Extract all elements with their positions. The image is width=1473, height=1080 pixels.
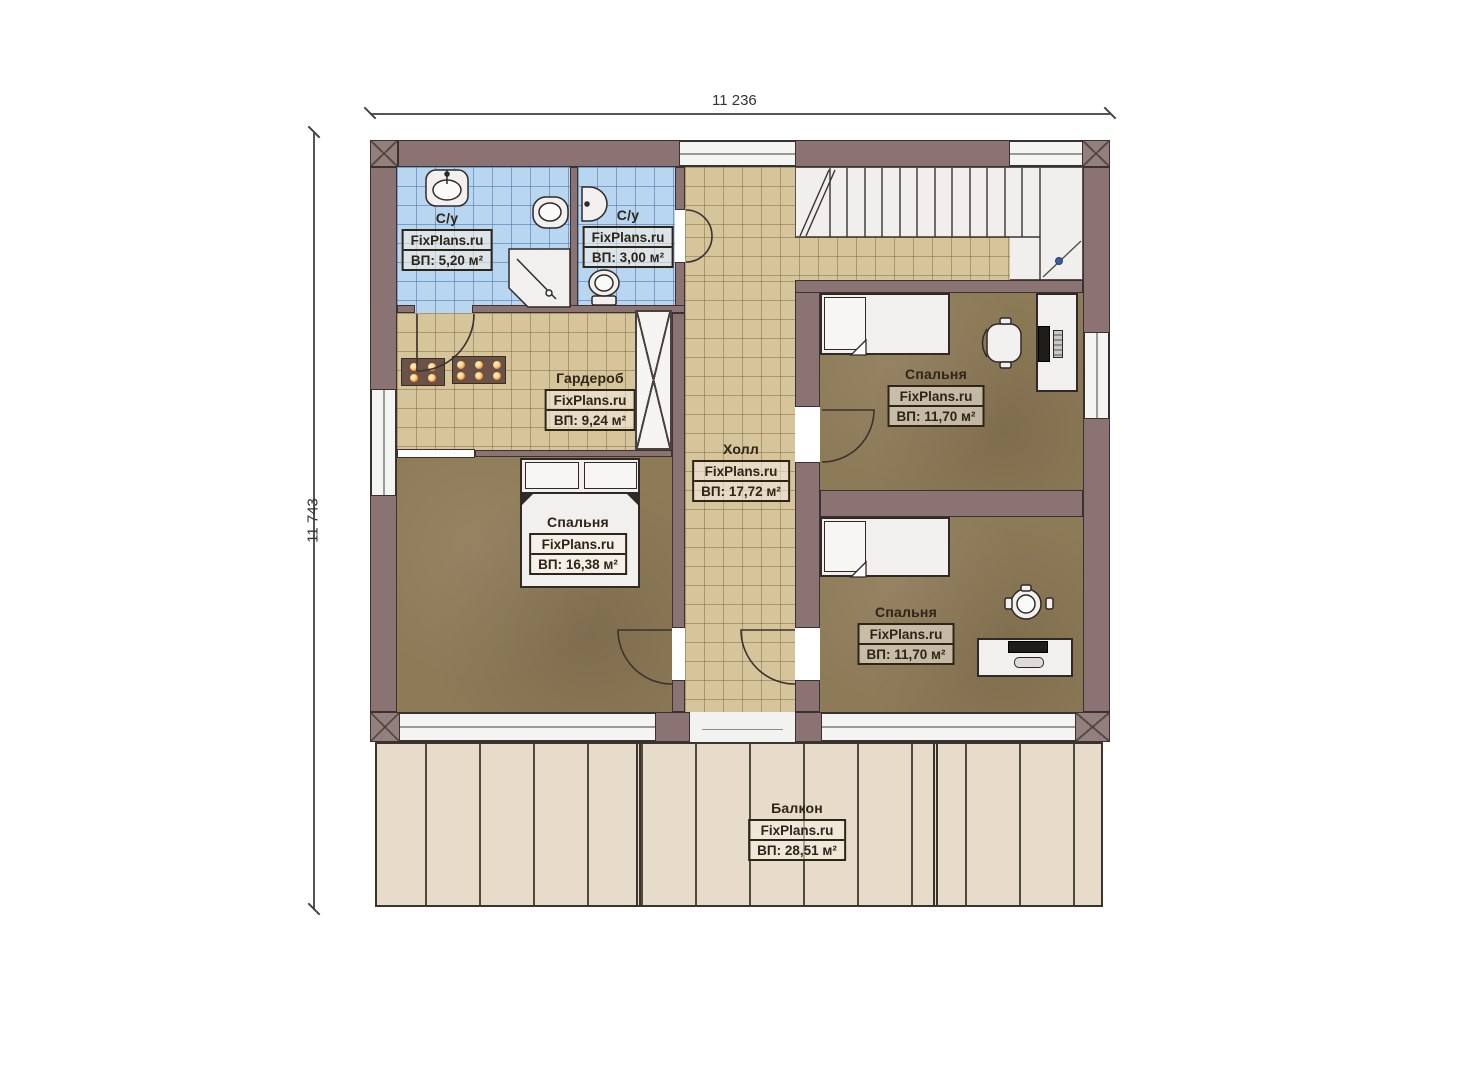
room-name: Спальня [888, 366, 985, 382]
pillow [824, 297, 866, 350]
wall-right-upper [1083, 167, 1110, 333]
pillow [584, 462, 637, 489]
wall-top-mid [795, 140, 1010, 167]
area-text: ВП: 16,38 м² [531, 555, 625, 573]
coat-rack [452, 356, 506, 384]
room-name: С/у [402, 210, 493, 226]
brand-text: FixPlans.ru [860, 625, 953, 645]
room-label-bathroom2: С/у FixPlans.ru ВП: 3,00 м² [583, 207, 674, 268]
spotlight-dots [410, 363, 436, 382]
room-label-wardrobe: Гардероб FixPlans.ru ВП: 9,24 м² [545, 370, 636, 431]
dimension-width-label: 11 236 [712, 92, 757, 109]
brand-text: FixPlans.ru [531, 535, 625, 555]
wall-hall-right-lower [795, 680, 820, 712]
bed-single [820, 293, 950, 355]
blanket-fold [625, 492, 638, 505]
blanket-line [521, 492, 639, 494]
wall-wardrobe-bedroom [475, 450, 672, 457]
room-label-bedroom-top-right: Спальня FixPlans.ru ВП: 11,70 м² [888, 366, 985, 427]
room-name: Спальня [858, 604, 955, 620]
room-info-box: FixPlans.ru ВП: 28,51 м² [748, 819, 846, 861]
window [1010, 140, 1082, 167]
wall-hall-left-upper [672, 313, 685, 628]
room-label-bedroom-bottom-right: Спальня FixPlans.ru ВП: 11,70 м² [858, 604, 955, 665]
corner-post [1075, 712, 1110, 742]
room-name: Холл [692, 441, 790, 457]
wall-bottom-post [795, 712, 822, 742]
wall-bathroom-divider [570, 167, 578, 313]
floor-plan: 11 236 11 743 [0, 0, 1473, 1080]
brand-text: FixPlans.ru [890, 387, 983, 407]
area-text: ВП: 3,00 м² [585, 248, 672, 266]
monitor [1038, 326, 1050, 362]
brand-text: FixPlans.ru [547, 391, 634, 411]
coat-rack [401, 358, 445, 386]
brand-text: FixPlans.ru [750, 821, 844, 841]
room-label-balcony: Балкон FixPlans.ru ВП: 28,51 м² [748, 800, 846, 861]
keyboard [1053, 330, 1063, 358]
wall-bathrooms-bottom-a [397, 305, 415, 313]
dimension-line-top [370, 113, 1110, 115]
area-text: ВП: 5,20 м² [404, 251, 491, 269]
window [1083, 333, 1110, 418]
area-text: ВП: 9,24 м² [547, 411, 634, 429]
wall-top-left [398, 140, 680, 167]
spotlight-dots [457, 361, 501, 380]
room-info-box: FixPlans.ru ВП: 9,24 м² [545, 389, 636, 431]
corner-post [370, 712, 400, 742]
balcony-floor [375, 742, 1103, 907]
wall-bottom-post [655, 712, 690, 742]
area-text: ВП: 28,51 м² [750, 841, 844, 859]
window [680, 140, 795, 167]
wall-hall-right-mid [795, 462, 820, 628]
area-text: ВП: 11,70 м² [890, 407, 983, 425]
area-text: ВП: 17,72 м² [694, 482, 788, 500]
window [370, 390, 397, 495]
balcony-door-opening [690, 712, 795, 742]
wall-bedrooms-divider [820, 490, 1083, 517]
wall-left-upper [370, 167, 397, 390]
pillow [824, 521, 866, 572]
monitor [1008, 641, 1048, 653]
wall-bathroom2-right-upper [675, 167, 685, 210]
brand-text: FixPlans.ru [585, 228, 672, 248]
room-label-bathroom1: С/у FixPlans.ru ВП: 5,20 м² [402, 210, 493, 271]
blanket-fold [522, 492, 535, 505]
room-info-box: FixPlans.ru ВП: 11,70 м² [858, 623, 955, 665]
room-label-hall: Холл FixPlans.ru ВП: 17,72 м² [692, 441, 790, 502]
window [822, 712, 1075, 742]
corner-post [1082, 140, 1110, 167]
room-name: Балкон [748, 800, 846, 816]
wall-bedroom-tr-top [795, 280, 1083, 293]
room-info-box: FixPlans.ru ВП: 17,72 м² [692, 460, 790, 502]
brand-text: FixPlans.ru [694, 462, 788, 482]
wall-left-lower [370, 495, 397, 712]
keyboard [1014, 657, 1044, 668]
wall-hall-right-upper [795, 287, 820, 407]
brand-text: FixPlans.ru [404, 231, 491, 251]
sliding-door [397, 449, 475, 458]
built-in-closet [635, 310, 672, 450]
balcony-plank-joint [636, 742, 641, 907]
pillow [525, 462, 579, 489]
room-label-bedroom-master: Спальня FixPlans.ru ВП: 16,38 м² [529, 514, 627, 575]
wall-right-lower [1083, 418, 1110, 712]
room-info-box: FixPlans.ru ВП: 5,20 м² [402, 229, 493, 271]
room-info-box: FixPlans.ru ВП: 16,38 м² [529, 533, 627, 575]
bed-single [820, 517, 950, 577]
room-info-box: FixPlans.ru ВП: 11,70 м² [888, 385, 985, 427]
room-name: С/у [583, 207, 674, 223]
corner-post [370, 140, 398, 167]
area-text: ВП: 11,70 м² [860, 645, 953, 663]
wall-hall-left-lower [672, 680, 685, 712]
balcony-plank-joint [933, 742, 938, 907]
window [400, 712, 655, 742]
room-info-box: FixPlans.ru ВП: 3,00 м² [583, 226, 674, 268]
hall-landing-strip [685, 237, 1010, 280]
dimension-height-label: 11 743 [305, 476, 322, 566]
room-name: Гардероб [545, 370, 636, 386]
room-name: Спальня [529, 514, 627, 530]
